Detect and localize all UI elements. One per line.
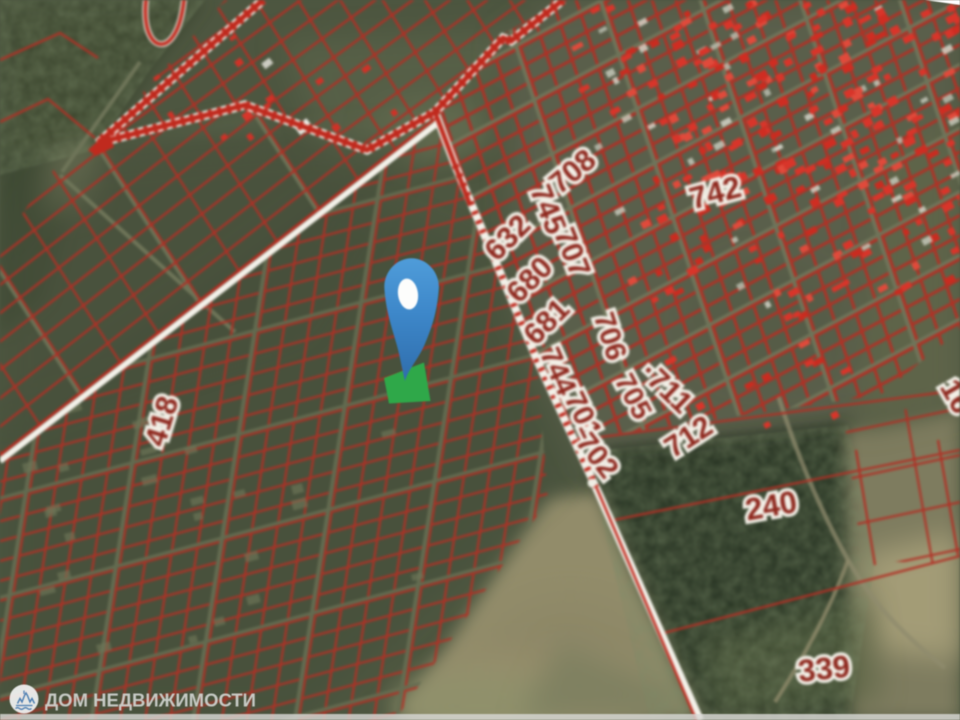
svg-text:ДОМ НЕДВИЖИМОСТИ: ДОМ НЕДВИЖИМОСТИ [45, 690, 256, 711]
